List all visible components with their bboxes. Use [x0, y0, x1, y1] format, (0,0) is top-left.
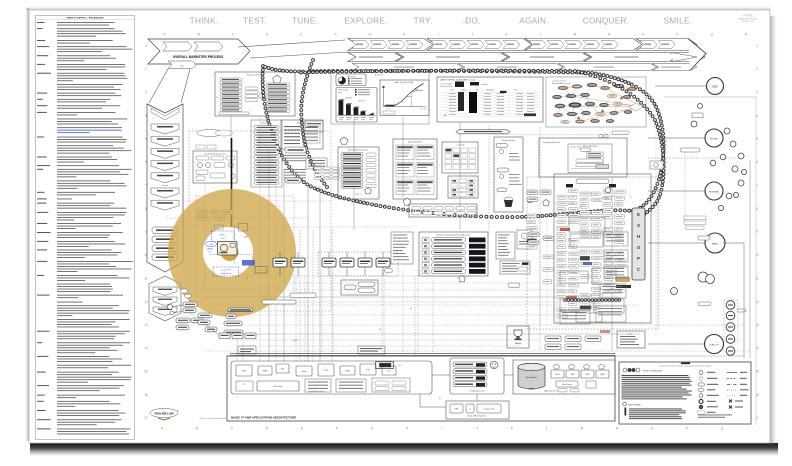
svg-text:1: 1 — [756, 44, 758, 48]
svg-text:14: 14 — [755, 346, 759, 350]
svg-text:15: 15 — [755, 370, 759, 374]
svg-text:WAP: WAP — [263, 370, 268, 373]
svg-text:Site Database: Site Database — [526, 376, 538, 379]
svg-text:0 . 7 5: 0 . 7 5 — [386, 109, 390, 111]
svg-text:KEEP IN MIND: KEEP IN MIND — [628, 405, 641, 407]
svg-text:TRY.: TRY. — [414, 17, 433, 26]
svg-text:CTI: CTI — [243, 384, 246, 386]
svg-text:17: 17 — [755, 416, 759, 420]
svg-text:S: S — [637, 223, 640, 228]
svg-text:Total: Total — [443, 114, 447, 117]
svg-text:REMIND: REMIND — [207, 249, 214, 251]
svg-text:Web: Web — [242, 371, 246, 373]
svg-text:data services: data services — [261, 122, 271, 125]
svg-text:F: F — [336, 427, 338, 431]
svg-text:r.2: r.2 — [260, 269, 262, 272]
svg-text:E: E — [301, 427, 303, 431]
svg-text:breakdown list: breakdown list — [220, 272, 231, 275]
svg-text:11: 11 — [144, 277, 148, 281]
svg-text:TUNE.: TUNE. — [292, 17, 318, 26]
svg-text:SMS: SMS — [345, 371, 350, 373]
svg-text:2: 2 — [756, 67, 758, 71]
svg-text:* wonder / who would called we: * wonder / who would called websites — [199, 417, 227, 420]
svg-text:5: 5 — [756, 137, 758, 141]
svg-text:C: C — [637, 267, 640, 272]
svg-text:IRON RECLAIM: IRON RECLAIM — [154, 412, 173, 416]
svg-text:P: P — [637, 256, 640, 261]
svg-text:P L: P L — [216, 97, 218, 99]
svg-text:TUBE | TV: TUBE | TV — [709, 345, 719, 347]
svg-text:Integration Level: Integration Level — [470, 390, 485, 393]
svg-text:e-mail TTRL: e-mail TTRL — [221, 270, 231, 272]
svg-text:1: 1 — [145, 44, 147, 48]
svg-text:sub item: sub item — [162, 184, 169, 187]
svg-text:M: M — [581, 427, 584, 431]
svg-text:E: E — [300, 33, 302, 37]
svg-text:8: 8 — [756, 207, 758, 211]
svg-text:b. norm rescaled: b. norm rescaled — [440, 86, 452, 88]
svg-text:AGAIN.: AGAIN. — [519, 17, 549, 26]
svg-text:14: 14 — [144, 346, 148, 350]
svg-text:scale line: scale line — [481, 84, 488, 86]
svg-text:THINK.: THINK. — [190, 17, 219, 26]
svg-text:WEB: WEB — [712, 86, 718, 89]
svg-text:CONQUER.: CONQUER. — [583, 17, 630, 26]
svg-text:eDM - 1: eDM - 1 — [219, 235, 227, 237]
svg-text:all-triads-IN-drive: all-triads-IN-drive — [552, 80, 566, 83]
svg-text:9: 9 — [756, 230, 758, 234]
svg-text:mix balance: mix balance — [347, 76, 356, 78]
svg-text:TOP 5% Table: TOP 5% Table — [338, 90, 348, 92]
svg-text:I: I — [442, 427, 443, 431]
svg-text:P: P — [686, 427, 688, 431]
svg-text:L: L — [540, 33, 542, 37]
svg-text:M: M — [574, 33, 577, 37]
svg-text:F: F — [335, 33, 337, 37]
svg-text:3: 3 — [145, 91, 147, 95]
svg-text:SemanticWeb survey: SemanticWeb survey — [552, 82, 570, 85]
svg-text:gained: gained — [407, 96, 412, 98]
svg-text:(Attraction Level): (Attraction Level) — [544, 390, 559, 393]
svg-text:Fax: Fax — [387, 371, 390, 373]
svg-text:MARKETING PROCESS: MARKETING PROCESS — [739, 18, 759, 21]
svg-text:ver.7: ver.7 — [462, 20, 468, 24]
svg-text:B: B — [196, 427, 198, 431]
svg-text:a. clock grid: a. clock grid — [456, 145, 465, 147]
svg-text:2008 / 09*: 2008 / 09* — [358, 101, 365, 103]
svg-text:12: 12 — [755, 300, 759, 304]
svg-text:16: 16 — [144, 393, 148, 397]
svg-text:6: 6 — [756, 160, 758, 164]
svg-text:+ CRM: + CRM — [242, 237, 248, 239]
svg-text:POSTER v7 2007: POSTER v7 2007 — [741, 21, 754, 23]
svg-text:H: H — [637, 234, 640, 239]
svg-text:INTERNET: INTERNET — [709, 192, 720, 194]
svg-text:P: P — [676, 33, 678, 37]
svg-text:© PLATE: © PLATE — [743, 15, 753, 18]
svg-text:Call Center: Call Center — [273, 385, 283, 388]
svg-text:Happy: Happy — [515, 343, 522, 345]
svg-text:3: 3 — [756, 91, 758, 95]
svg-text:total implementation process: total implementation process — [204, 153, 226, 156]
svg-text:eMRD: eMRD — [529, 389, 535, 391]
svg-text:PHONE: PHONE — [710, 139, 718, 141]
svg-text:Back-Office Systems: Back-Office Systems — [468, 415, 487, 418]
svg-text:seed: seed — [209, 244, 213, 246]
svg-text:(e) (R): (e) (R) — [293, 340, 298, 342]
svg-text:xx: xx — [469, 409, 471, 411]
svg-text:Campaign Execution: Campaign Execution — [543, 141, 560, 144]
svg-text:eMail: eMail — [302, 371, 307, 373]
svg-text:4 3 2 1: 4 3 2 1 — [355, 194, 360, 196]
svg-text:(P): (P) — [439, 398, 442, 400]
svg-text:B: B — [198, 33, 200, 37]
svg-text:start: start — [180, 64, 184, 67]
svg-text:EMAIL: EMAIL — [712, 243, 719, 246]
svg-text:4: 4 — [756, 114, 758, 118]
svg-text:CAMPS / METRIC SCALE TABLE sa: CAMPS / METRIC SCALE TABLE sample — [440, 79, 475, 82]
svg-text:notes: notes — [628, 333, 632, 336]
svg-text:I: I — [438, 33, 439, 37]
svg-text:SMILE.: SMILE. — [664, 17, 693, 26]
svg-text:r.2: r.2 — [246, 277, 248, 280]
svg-text:15: 15 — [144, 370, 148, 374]
svg-text:Tables & Balancing schemes: Tables & Balancing schemes — [348, 150, 369, 152]
svg-text:L: L — [546, 427, 548, 431]
svg-text:12: 12 — [144, 300, 148, 304]
svg-text:13: 13 — [144, 323, 148, 327]
svg-text:13: 13 — [755, 323, 759, 327]
svg-text:E: E — [637, 212, 640, 217]
svg-text:Legacy / SCM: Legacy / SCM — [484, 409, 495, 411]
svg-text:TERMS OF SUPPORT — EXPLANATION: TERMS OF SUPPORT — EXPLANATIONS — [66, 17, 104, 20]
svg-text:TEST.: TEST. — [243, 17, 267, 26]
svg-text:eMail: eMail — [555, 374, 560, 376]
svg-text:10: 10 — [755, 253, 759, 257]
svg-text:B For Two: B For Two — [375, 75, 383, 77]
svg-text:(CF): (CF) — [398, 365, 402, 367]
svg-text:TouchPoint Level: TouchPoint Level — [308, 390, 324, 393]
svg-text:7: 7 — [756, 184, 758, 188]
svg-text:battle: IT is that is R&Bly: battle: IT is that is R&Bly — [395, 81, 414, 84]
svg-text:16: 16 — [755, 393, 759, 397]
svg-text:EXPLORE.: EXPLORE. — [344, 17, 387, 26]
svg-text:HOW TO READ/USE: HOW TO READ/USE — [643, 370, 663, 373]
svg-text:Media Server: Media Server — [562, 383, 572, 386]
svg-text:17: 17 — [144, 416, 148, 420]
svg-text:BASIC IT AND APPLICATION ARCHI: BASIC IT AND APPLICATION ARCHITECTURE — [231, 416, 296, 420]
svg-text:2007 NET: 2007 NET — [345, 98, 352, 100]
svg-text:inbound box: inbound box — [297, 123, 307, 125]
svg-text:OVERALL MARKETER PROCESS: OVERALL MARKETER PROCESS — [173, 55, 224, 59]
svg-text:Regular: Regular — [461, 89, 467, 91]
svg-text:focus: focus — [221, 238, 225, 240]
svg-text:2: 2 — [145, 67, 147, 71]
